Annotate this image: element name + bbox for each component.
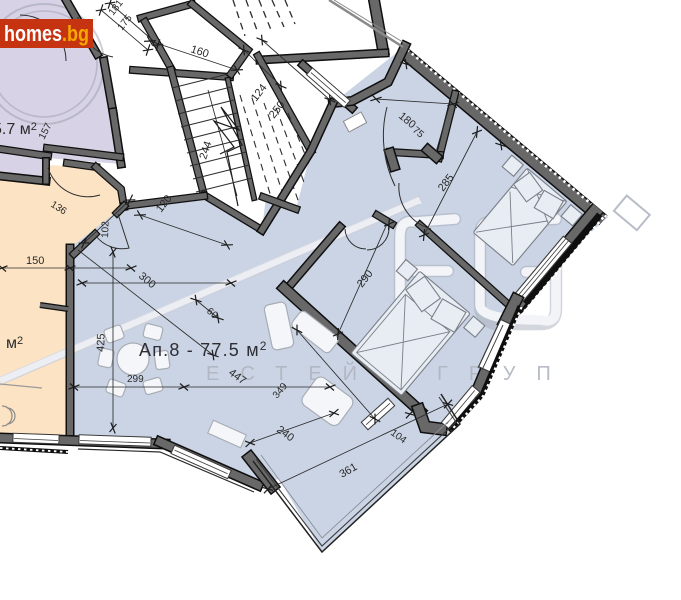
svg-text:299: 299 xyxy=(127,374,144,385)
svg-text:102: 102 xyxy=(100,221,112,238)
svg-text:Ап.8 - 77.5 м2: Ап.8 - 77.5 м2 xyxy=(139,339,268,360)
svg-text:425: 425 xyxy=(95,333,108,352)
svg-text:homes.bg: homes.bg xyxy=(4,21,89,46)
svg-text:150: 150 xyxy=(26,255,44,267)
svg-text:ГРУП: ГРУП xyxy=(437,363,572,385)
